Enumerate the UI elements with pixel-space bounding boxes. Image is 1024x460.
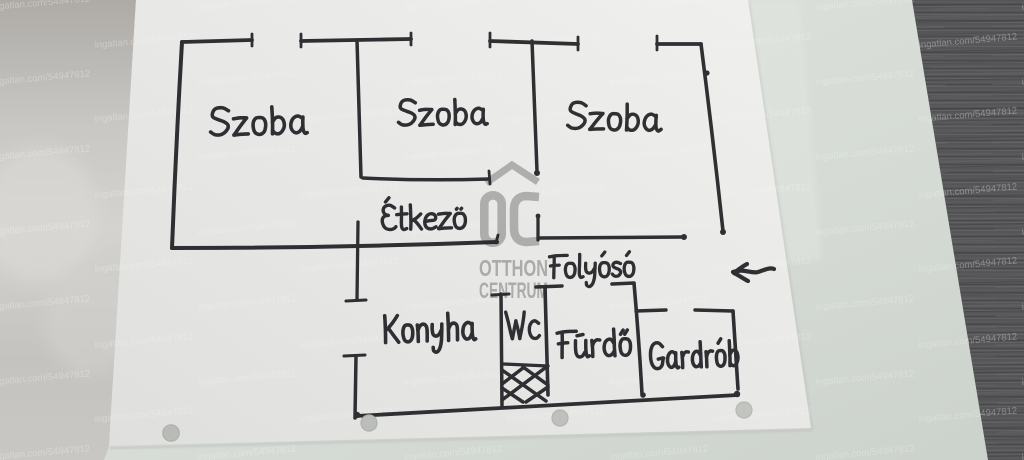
svg-text:CENTRUM: CENTRUM xyxy=(479,278,548,303)
